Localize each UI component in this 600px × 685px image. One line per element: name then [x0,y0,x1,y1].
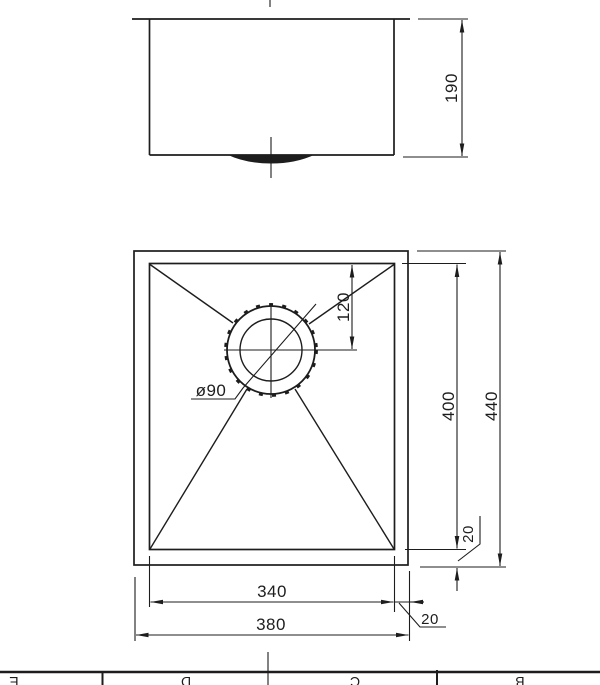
crease-top-left [150,265,233,324]
zone-label-d: D [181,674,191,685]
crease-bottom-right [295,389,394,549]
elevation-view: 190 [132,0,468,178]
dimension-value-190: 190 [442,73,461,103]
dimension-value-340: 340 [257,582,287,601]
dimension-value-120: 120 [334,292,353,322]
zone-label-e: E [9,674,18,685]
outer-rim-rect [134,251,408,565]
sink-drawing-canvas: 190 ø90 120 [0,0,600,685]
zone-label-b: B [515,674,524,685]
title-block-frame: E D C B [0,652,600,685]
zone-label-c: C [350,674,360,685]
dimension-bottom-side: 340 20 380 [135,556,446,641]
crease-bottom-left [150,389,247,549]
dimension-value-400: 400 [439,391,458,421]
dimension-value-rim-bottom: 20 [421,611,439,628]
technical-drawing-sheet: 190 ø90 120 [0,0,600,685]
dimension-elevation-height: 190 [403,19,468,157]
dimension-right-side: 400 440 20 [402,251,506,591]
dimension-value-380: 380 [256,615,286,634]
dimension-value-drain-diameter: ø90 [196,381,227,400]
dimension-drain-offset: 120 [334,265,353,349]
dimension-value-rim-right: 20 [460,525,477,543]
plan-view: ø90 120 400 440 20 [134,251,506,641]
dimension-value-440: 440 [482,391,501,421]
